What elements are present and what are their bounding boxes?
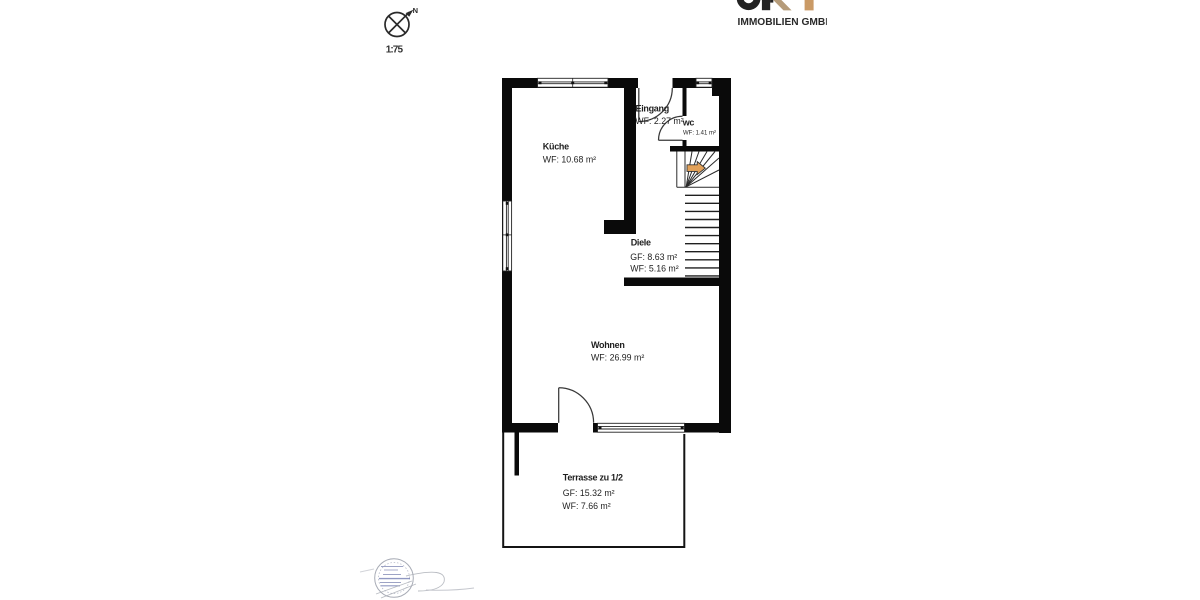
svg-text:Eingang: Eingang <box>636 104 669 114</box>
svg-text:Küche: Küche <box>543 142 569 152</box>
svg-text:1:75: 1:75 <box>386 45 404 56</box>
svg-text:WF: 26.99 m²: WF: 26.99 m² <box>591 353 644 363</box>
svg-text:Diele: Diele <box>631 238 651 248</box>
svg-text:IMMOBILIEN GMBH: IMMOBILIEN GMBH <box>738 17 833 28</box>
svg-text:WF: 10.68 m²: WF: 10.68 m² <box>543 155 596 165</box>
svg-text:WF: 2.27 m²: WF: 2.27 m² <box>635 116 683 126</box>
svg-text:GF: 15.32 m²: GF: 15.32 m² <box>563 488 615 498</box>
svg-text:N: N <box>413 6 418 15</box>
svg-text:WF: 5.16 m²: WF: 5.16 m² <box>630 263 678 273</box>
svg-text:Terrasse zu 1/2: Terrasse zu 1/2 <box>563 473 623 483</box>
svg-text:Wohnen: Wohnen <box>591 340 625 350</box>
svg-text:WF: 1.41 m²: WF: 1.41 m² <box>683 130 716 136</box>
svg-text:WF: 7.66 m²: WF: 7.66 m² <box>562 501 610 511</box>
svg-text:GF: 8.63 m²: GF: 8.63 m² <box>630 252 677 262</box>
